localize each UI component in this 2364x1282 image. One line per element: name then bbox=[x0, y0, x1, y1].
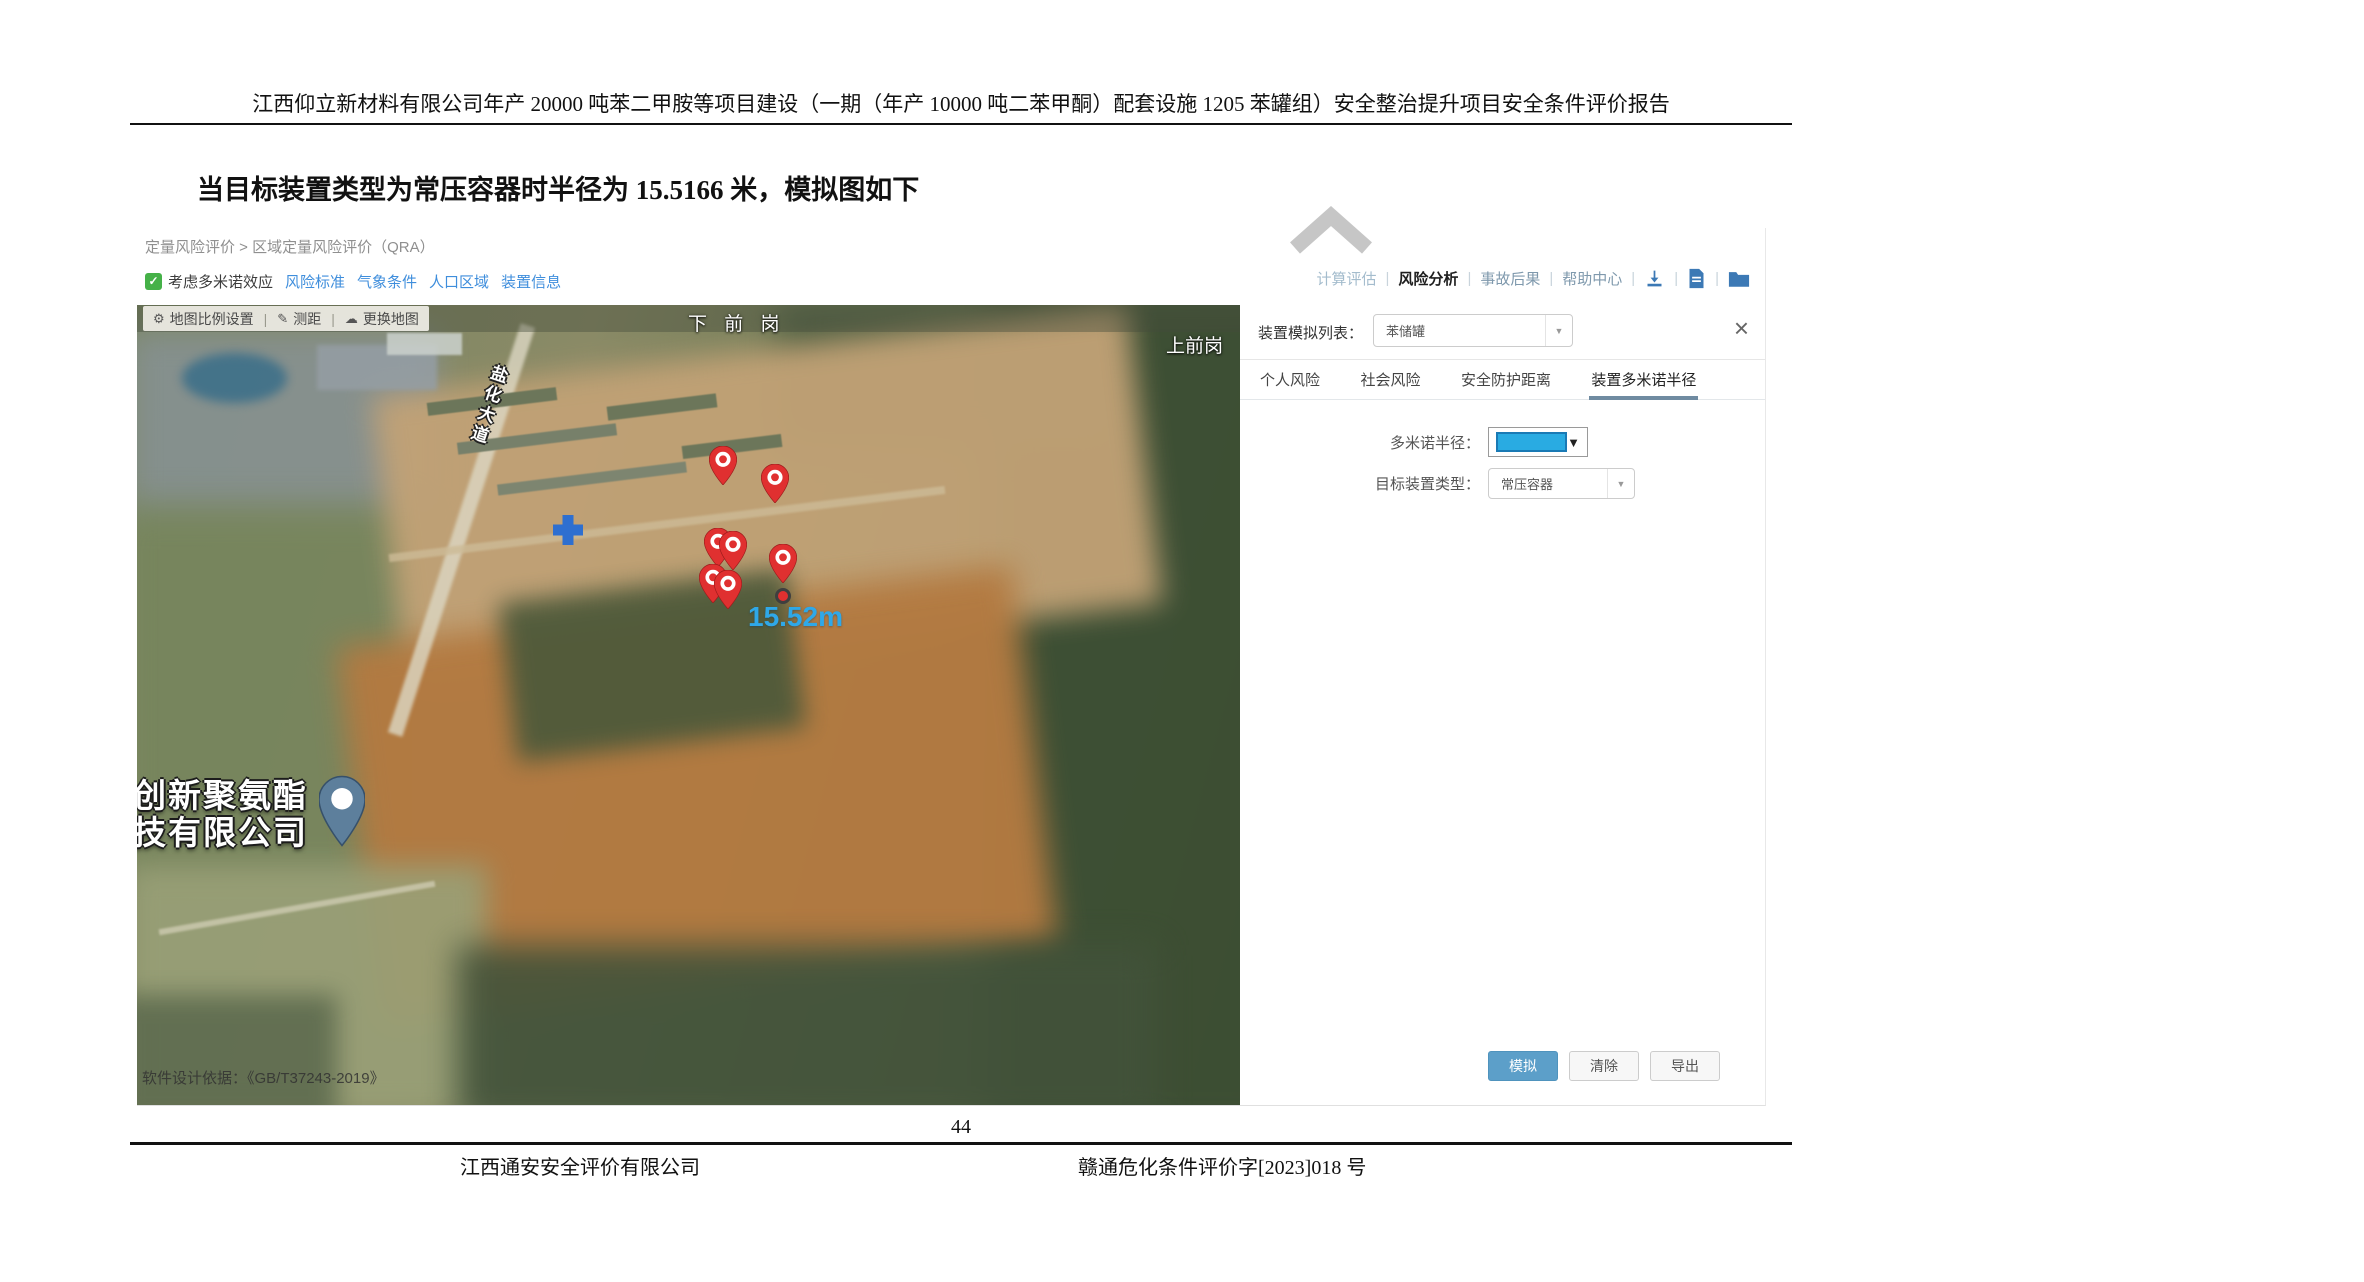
top-toolbar: 计算评估 | 风险分析 | 事故后果 | 帮助中心 | | | bbox=[1317, 268, 1751, 289]
breadcrumb[interactable]: 定量风险评价 > 区域定量风险评价（QRA） bbox=[145, 236, 435, 257]
chevron-down-icon: ▼ bbox=[1607, 469, 1634, 498]
toolbar-accident-consequence[interactable]: 事故后果 bbox=[1480, 268, 1540, 289]
domino-effect-checkbox[interactable]: ✓ bbox=[145, 273, 162, 290]
toolbar-calc-eval[interactable]: 计算评估 bbox=[1317, 268, 1377, 289]
separator: | bbox=[1467, 270, 1471, 287]
map-marker-pin[interactable] bbox=[769, 544, 797, 588]
target-type-label: 目标装置类型： bbox=[1240, 473, 1480, 494]
target-type-row: 目标装置类型： 常压容器 ▼ bbox=[1240, 468, 1765, 499]
domino-effect-label: 考虑多米诺效应 bbox=[168, 271, 273, 292]
domino-radius-label: 多米诺半径： bbox=[1240, 432, 1480, 453]
qra-app-screenshot: 定量风险评价 > 区域定量风险评价（QRA） ✓ 考虑多米诺效应 风险标准 气象… bbox=[137, 228, 1766, 1106]
close-icon[interactable]: × bbox=[1734, 315, 1749, 341]
target-type-value: 常压容器 bbox=[1489, 474, 1553, 493]
device-list-value: 苯储罐 bbox=[1374, 321, 1425, 340]
check-icon: ✓ bbox=[148, 274, 158, 288]
link-population-area[interactable]: 人口区域 bbox=[429, 271, 489, 292]
panel-buttons: 模拟 清除 导出 bbox=[1488, 1051, 1720, 1081]
tab-domino-radius[interactable]: 装置多米诺半径 bbox=[1589, 360, 1698, 400]
domino-radius-row: 多米诺半径： ▼ bbox=[1240, 427, 1765, 457]
separator: | bbox=[1386, 270, 1390, 287]
link-device-info[interactable]: 装置信息 bbox=[501, 271, 561, 292]
toolbar-help-center[interactable]: 帮助中心 bbox=[1562, 268, 1622, 289]
tab-social-risk[interactable]: 社会风险 bbox=[1358, 360, 1422, 400]
map-markers-layer bbox=[137, 305, 1240, 1105]
target-type-dropdown[interactable]: 常压容器 ▼ bbox=[1488, 468, 1635, 499]
domino-radius-color-dropdown[interactable]: ▼ bbox=[1488, 427, 1588, 457]
map-watermark: 软件设计依据：《GB/T37243-2019》 bbox=[142, 1067, 385, 1088]
link-weather-conditions[interactable]: 气象条件 bbox=[357, 271, 417, 292]
chevron-down-icon: ▼ bbox=[1567, 435, 1580, 450]
toolbar-risk-analysis[interactable]: 风险分析 bbox=[1398, 268, 1458, 289]
domino-radius-swatch bbox=[1496, 432, 1567, 452]
simulation-panel: 装置模拟列表： 苯储罐 ▼ × 个人风险 社会风险 安全防护距离 装置多米诺半径… bbox=[1240, 305, 1765, 1105]
header-divider bbox=[130, 123, 1792, 125]
chevron-down-icon: ▼ bbox=[1545, 315, 1572, 346]
collapse-chevron-icon[interactable] bbox=[1283, 202, 1379, 256]
separator: | bbox=[1549, 270, 1553, 287]
measurement-label: 15.52m bbox=[748, 601, 843, 633]
separator: | bbox=[1715, 270, 1719, 287]
tab-personal-risk[interactable]: 个人风险 bbox=[1258, 360, 1322, 400]
device-list-dropdown[interactable]: 苯储罐 ▼ bbox=[1373, 314, 1573, 347]
folder-icon[interactable] bbox=[1728, 269, 1750, 288]
panel-tabs: 个人风险 社会风险 安全防护距离 装置多米诺半径 bbox=[1240, 360, 1765, 400]
report-header-title: 江西仰立新材料有限公司年产 20000 吨苯二甲胺等项目建设（一期（年产 100… bbox=[130, 88, 1792, 118]
footer-divider bbox=[130, 1142, 1792, 1145]
separator: | bbox=[1674, 270, 1678, 287]
download-icon[interactable] bbox=[1644, 268, 1665, 289]
link-risk-standard[interactable]: 风险标准 bbox=[285, 271, 345, 292]
panel-header: 装置模拟列表： 苯储罐 ▼ × bbox=[1240, 305, 1765, 360]
clear-button[interactable]: 清除 bbox=[1569, 1051, 1639, 1081]
tab-safety-distance[interactable]: 安全防护距离 bbox=[1459, 360, 1553, 400]
footer-certificate-number: 赣通危化条件评价字[2023]018 号 bbox=[1078, 1151, 1366, 1180]
separator: | bbox=[1631, 270, 1635, 287]
device-list-label: 装置模拟列表： bbox=[1258, 322, 1363, 343]
satellite-map[interactable]: ⚙ 地图比例设置 | ✎ 测距 | ☁ 更换地图 下 前 岗 上前岗 盐化大道 … bbox=[137, 305, 1240, 1105]
document-icon[interactable] bbox=[1687, 268, 1706, 289]
map-marker-pin[interactable] bbox=[761, 464, 789, 508]
export-button[interactable]: 导出 bbox=[1650, 1051, 1720, 1081]
page-number: 44 bbox=[130, 1116, 1792, 1139]
footer-company: 江西通安安全评价有限公司 bbox=[460, 1151, 700, 1180]
body-paragraph: 当目标装置类型为常压容器时半径为 15.5166 米，模拟图如下 bbox=[197, 168, 919, 207]
simulate-button[interactable]: 模拟 bbox=[1488, 1051, 1558, 1081]
map-marker-pin[interactable] bbox=[714, 570, 742, 614]
map-marker-pin[interactable] bbox=[709, 446, 737, 490]
options-row: ✓ 考虑多米诺效应 风险标准 气象条件 人口区域 装置信息 bbox=[145, 270, 561, 292]
